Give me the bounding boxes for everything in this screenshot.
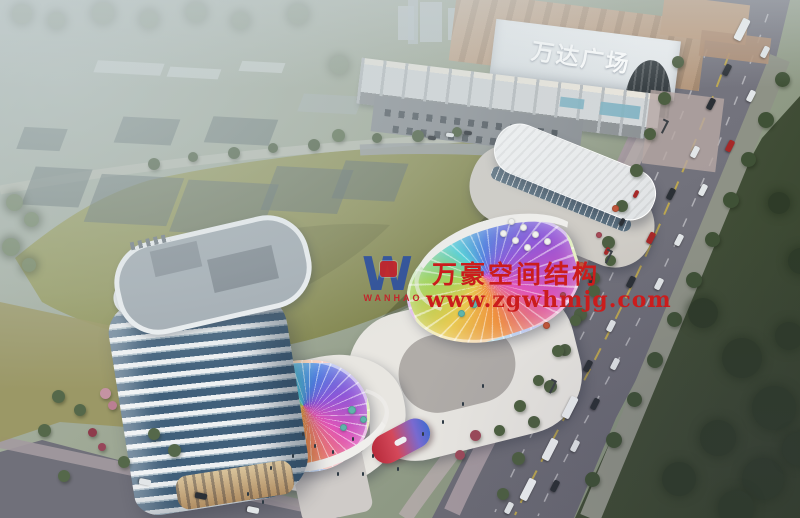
warehouse-building bbox=[21, 167, 92, 208]
tree bbox=[74, 404, 86, 416]
person bbox=[270, 466, 272, 470]
autumn-tree bbox=[470, 430, 481, 441]
tree-cluster bbox=[92, 2, 114, 24]
person bbox=[442, 420, 444, 424]
hangar-building bbox=[297, 93, 363, 114]
umbrella-teal bbox=[360, 416, 367, 423]
lawn-tree-cluster bbox=[662, 462, 696, 496]
city-tower bbox=[420, 2, 442, 42]
parasol bbox=[596, 232, 602, 238]
watermark: W WANHAO 万豪空间结构 www.zgwhmjg.com bbox=[354, 249, 634, 321]
white-roof-building bbox=[93, 60, 164, 76]
median-tree bbox=[705, 232, 720, 247]
median-tree bbox=[775, 72, 790, 87]
person bbox=[462, 402, 464, 406]
street-tree bbox=[644, 128, 656, 140]
person bbox=[314, 444, 316, 448]
tree-cluster bbox=[186, 2, 206, 22]
street-tree bbox=[672, 56, 684, 68]
warehouse-building bbox=[331, 160, 408, 201]
watermark-logo-red-square bbox=[380, 261, 397, 277]
person bbox=[247, 492, 249, 496]
umbrella bbox=[520, 224, 527, 231]
person bbox=[482, 384, 484, 388]
tree-cluster bbox=[22, 258, 36, 272]
person bbox=[397, 467, 399, 471]
street-tree bbox=[497, 488, 509, 500]
umbrella bbox=[544, 238, 551, 245]
tree-cluster bbox=[6, 194, 23, 211]
tree bbox=[148, 158, 160, 170]
tree-cluster bbox=[232, 12, 249, 29]
autumn-tree bbox=[98, 443, 106, 451]
warehouse-building bbox=[84, 174, 185, 226]
median-tree bbox=[606, 432, 622, 448]
median-tree bbox=[667, 312, 682, 327]
tree bbox=[332, 129, 345, 142]
person bbox=[352, 437, 354, 441]
median-tree bbox=[647, 352, 663, 368]
blossom-tree bbox=[100, 388, 111, 399]
frontage-tree bbox=[494, 425, 505, 436]
lawn-tree-cluster bbox=[722, 338, 762, 378]
umbrella bbox=[508, 218, 515, 225]
lawn-tree-cluster bbox=[718, 490, 754, 518]
autumn-tree bbox=[455, 450, 465, 460]
lawn-tree-cluster bbox=[688, 298, 718, 328]
watermark-company-title: 万豪空间结构 bbox=[432, 255, 600, 291]
person bbox=[292, 454, 294, 458]
tree bbox=[188, 152, 198, 162]
tree bbox=[372, 133, 382, 143]
white-roof-building bbox=[167, 67, 222, 80]
frontage-tree bbox=[514, 400, 526, 412]
parasol bbox=[612, 205, 619, 212]
lawn-tree-cluster bbox=[775, 322, 800, 350]
tree-cluster bbox=[288, 4, 308, 24]
tree bbox=[58, 470, 70, 482]
tree-cluster bbox=[12, 4, 32, 24]
aerial-rendering-canvas: 万达广场 bbox=[0, 0, 800, 518]
person bbox=[422, 432, 424, 436]
tree bbox=[308, 139, 320, 151]
warehouse-building bbox=[114, 117, 181, 146]
umbrella bbox=[532, 231, 539, 238]
umbrella-teal bbox=[340, 424, 347, 431]
tree bbox=[168, 444, 181, 457]
person bbox=[302, 432, 304, 436]
tree bbox=[268, 143, 278, 153]
tree bbox=[38, 424, 51, 437]
median-tree bbox=[627, 392, 642, 407]
tree bbox=[148, 428, 160, 440]
tree-cluster bbox=[48, 12, 65, 29]
tree bbox=[228, 147, 240, 159]
median-tree bbox=[686, 272, 702, 288]
median-tree bbox=[741, 152, 756, 167]
median-tree bbox=[758, 112, 774, 128]
watermark-website-url: www.zgwhmjg.com bbox=[426, 287, 672, 313]
street-tree bbox=[512, 452, 525, 465]
median-tree bbox=[585, 472, 600, 487]
tree-cluster bbox=[330, 56, 348, 74]
person bbox=[362, 472, 364, 476]
street-tree bbox=[528, 416, 540, 428]
tree-cluster bbox=[24, 212, 39, 227]
median-tree bbox=[723, 192, 739, 208]
umbrella bbox=[512, 237, 519, 244]
car bbox=[446, 133, 454, 138]
umbrella bbox=[500, 230, 507, 237]
car bbox=[464, 131, 472, 136]
city-tower bbox=[408, 0, 418, 44]
tree bbox=[118, 456, 130, 468]
lawn-tree-cluster bbox=[742, 458, 784, 500]
lawn-tree-cluster bbox=[752, 386, 796, 430]
person bbox=[262, 500, 264, 504]
blossom-tree bbox=[108, 401, 117, 410]
warehouse-building bbox=[16, 127, 67, 151]
street-tree bbox=[630, 164, 643, 177]
car bbox=[428, 136, 436, 141]
watermark-brand-name: WANHAO bbox=[354, 293, 432, 303]
warehouse-building bbox=[204, 116, 279, 145]
lawn-tree-cluster bbox=[700, 420, 736, 456]
autumn-tree bbox=[88, 428, 97, 437]
lawn-tree-cluster bbox=[768, 192, 790, 214]
parasol bbox=[543, 322, 550, 329]
person bbox=[332, 450, 334, 454]
tree-cluster bbox=[140, 10, 158, 28]
umbrella-teal bbox=[348, 406, 356, 414]
tree bbox=[412, 130, 424, 142]
person bbox=[337, 472, 339, 476]
white-roof-building bbox=[239, 61, 286, 73]
street-tree bbox=[658, 92, 671, 105]
tree bbox=[52, 390, 65, 403]
person bbox=[372, 454, 374, 458]
tree-cluster bbox=[2, 238, 20, 256]
frontage-tree bbox=[533, 375, 544, 386]
frontage-tree bbox=[552, 345, 564, 357]
